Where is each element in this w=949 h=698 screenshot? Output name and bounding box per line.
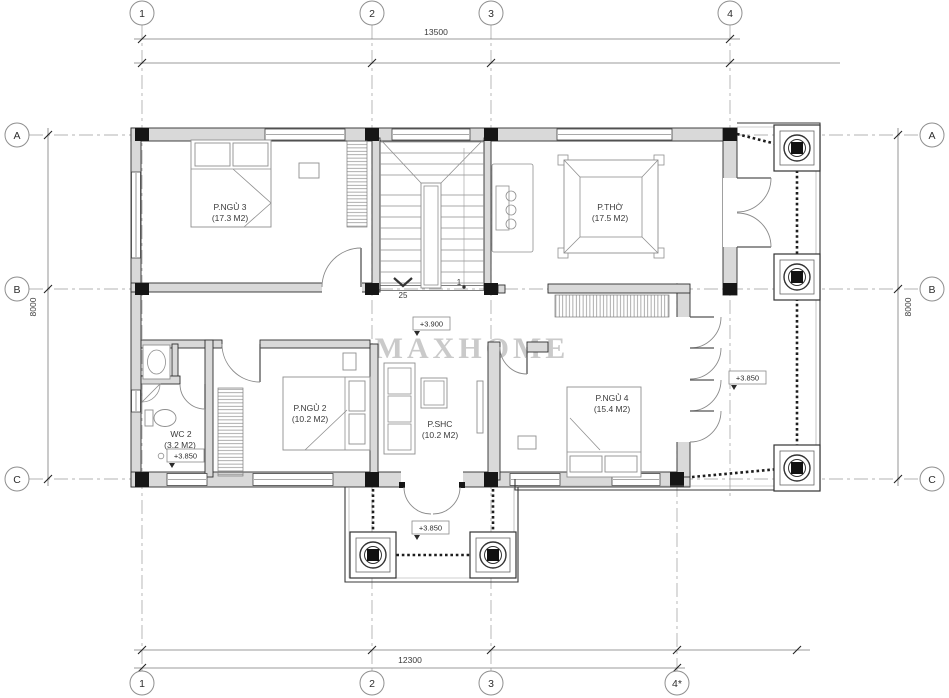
svg-text:A: A [13, 130, 20, 142]
room-area-bedroom4: (15.4 M2) [594, 404, 631, 414]
room-area-pshc: (10.2 M2) [422, 430, 459, 440]
grid-bubble-left-a: A [5, 123, 29, 147]
floor-plan-drawing: MAXHOME 13500 12300 8000 8000 [0, 0, 949, 698]
grid-bubble-top-2: 2 [360, 1, 384, 25]
shower-wc [142, 384, 160, 402]
level-flag-side-balcony: +3.850 [729, 371, 766, 390]
window-top-bedroom3 [265, 129, 345, 140]
svg-text:C: C [928, 474, 936, 486]
door-bedroom4-balcony-bifold [690, 317, 721, 442]
door-bedroom2 [222, 344, 260, 382]
coffee-table-pshc [421, 378, 447, 408]
room-area-ptho: (17.5 M2) [592, 213, 629, 223]
nightstand-bedroom2 [343, 353, 356, 370]
wardrobe-bedroom4 [555, 295, 669, 317]
grid-bubble-right-b: B [920, 277, 944, 301]
grid-bubble-bottom-2: 2 [360, 671, 384, 695]
room-label-bedroom2: P.NGỦ 2 [294, 402, 327, 413]
console-ptho [492, 164, 533, 252]
floor-plan-page: MAXHOME 13500 12300 8000 8000 [0, 0, 949, 698]
wardrobe-bedroom2 [218, 388, 243, 476]
svg-text:1: 1 [139, 8, 145, 20]
decorative-column [350, 532, 396, 578]
toilet-wc [145, 410, 176, 427]
sofa-pshc [384, 363, 415, 454]
dim-top: 13500 [424, 27, 448, 37]
decorative-column [774, 254, 820, 300]
svg-text:A: A [928, 130, 935, 142]
grid-bubble-bottom-4: 4* [665, 671, 689, 695]
grid-bubble-top-3: 3 [479, 1, 503, 25]
svg-text:B: B [13, 284, 20, 296]
level-front-balcony: +3.850 [419, 524, 442, 533]
room-area-bedroom2: (10.2 M2) [292, 414, 329, 424]
stair-riser-start: 1 [457, 278, 462, 287]
grid-bubble-top-4: 4 [718, 1, 742, 25]
svg-text:2: 2 [369, 8, 375, 20]
level-wc: +3.850 [174, 452, 197, 461]
svg-text:3: 3 [488, 8, 494, 20]
grid-bubble-top-1: 1 [130, 1, 154, 25]
grid-bubble-left-c: C [5, 467, 29, 491]
nightstand-bedroom4 [518, 436, 536, 449]
door-wc [180, 384, 205, 409]
room-area-wc2: (3.2 M2) [164, 440, 196, 450]
svg-text:4*: 4* [672, 678, 682, 690]
window-bottom-wc [167, 474, 207, 486]
window-left-wc [132, 390, 141, 412]
staircase: 25 1 [380, 139, 484, 300]
svg-text:B: B [928, 284, 935, 296]
room-label-ptho: P.THỜ [597, 202, 623, 212]
svg-text:C: C [13, 474, 21, 486]
svg-text:4: 4 [727, 8, 733, 20]
level-marker-icon [731, 385, 737, 390]
vanity-wc [143, 345, 170, 379]
furniture [142, 140, 669, 477]
window-left-bedroom3 [132, 172, 141, 258]
level-flag-wc: +3.850 [158, 449, 204, 468]
level-marker-icon [169, 463, 175, 468]
room-label-wc2: WC 2 [170, 429, 192, 439]
level-side-balcony: +3.850 [736, 374, 759, 383]
level-flag-front-balcony: +3.850 [412, 521, 449, 540]
grid-bubble-bottom-1: 1 [130, 671, 154, 695]
wardrobe-bedroom3 [347, 141, 367, 227]
dim-bottom: 12300 [398, 655, 422, 665]
dim-left: 8000 [28, 297, 38, 316]
dim-right: 8000 [903, 297, 913, 316]
decorative-column [470, 532, 516, 578]
svg-text:2: 2 [369, 678, 375, 690]
room-area-bedroom3: (17.3 M2) [212, 213, 249, 223]
window-bottom-bedroom4a [510, 474, 560, 486]
grid-bubble-bottom-3: 3 [479, 671, 503, 695]
room-label-pshc: P.SHC [428, 419, 453, 429]
decorative-column [774, 445, 820, 491]
window-top-ptho [557, 129, 672, 140]
nightstand-bedroom3 [299, 163, 319, 178]
grid-bubble-right-a: A [920, 123, 944, 147]
window-top-stairs [392, 129, 470, 140]
level-hall: +3.900 [420, 320, 443, 329]
tv-pshc [477, 381, 483, 433]
room-label-bedroom3: P.NGỦ 3 [214, 201, 247, 212]
svg-text:3: 3 [488, 678, 494, 690]
door-bedroom3 [322, 248, 361, 287]
room-label-bedroom4: P.NGỦ 4 [596, 392, 629, 403]
drain-icon [158, 453, 164, 459]
window-bottom-bedroom2 [253, 474, 333, 486]
grid-bubble-left-b: B [5, 277, 29, 301]
door-ptho-balcony [737, 178, 771, 247]
level-marker-icon [414, 535, 420, 540]
railing-side-balcony [692, 134, 797, 477]
stair-riser-total: 25 [399, 291, 408, 300]
stair-direction-arrow-icon [394, 278, 412, 286]
grid-bubble-right-c: C [920, 467, 944, 491]
svg-text:1: 1 [139, 678, 145, 690]
decorative-column [774, 125, 820, 171]
